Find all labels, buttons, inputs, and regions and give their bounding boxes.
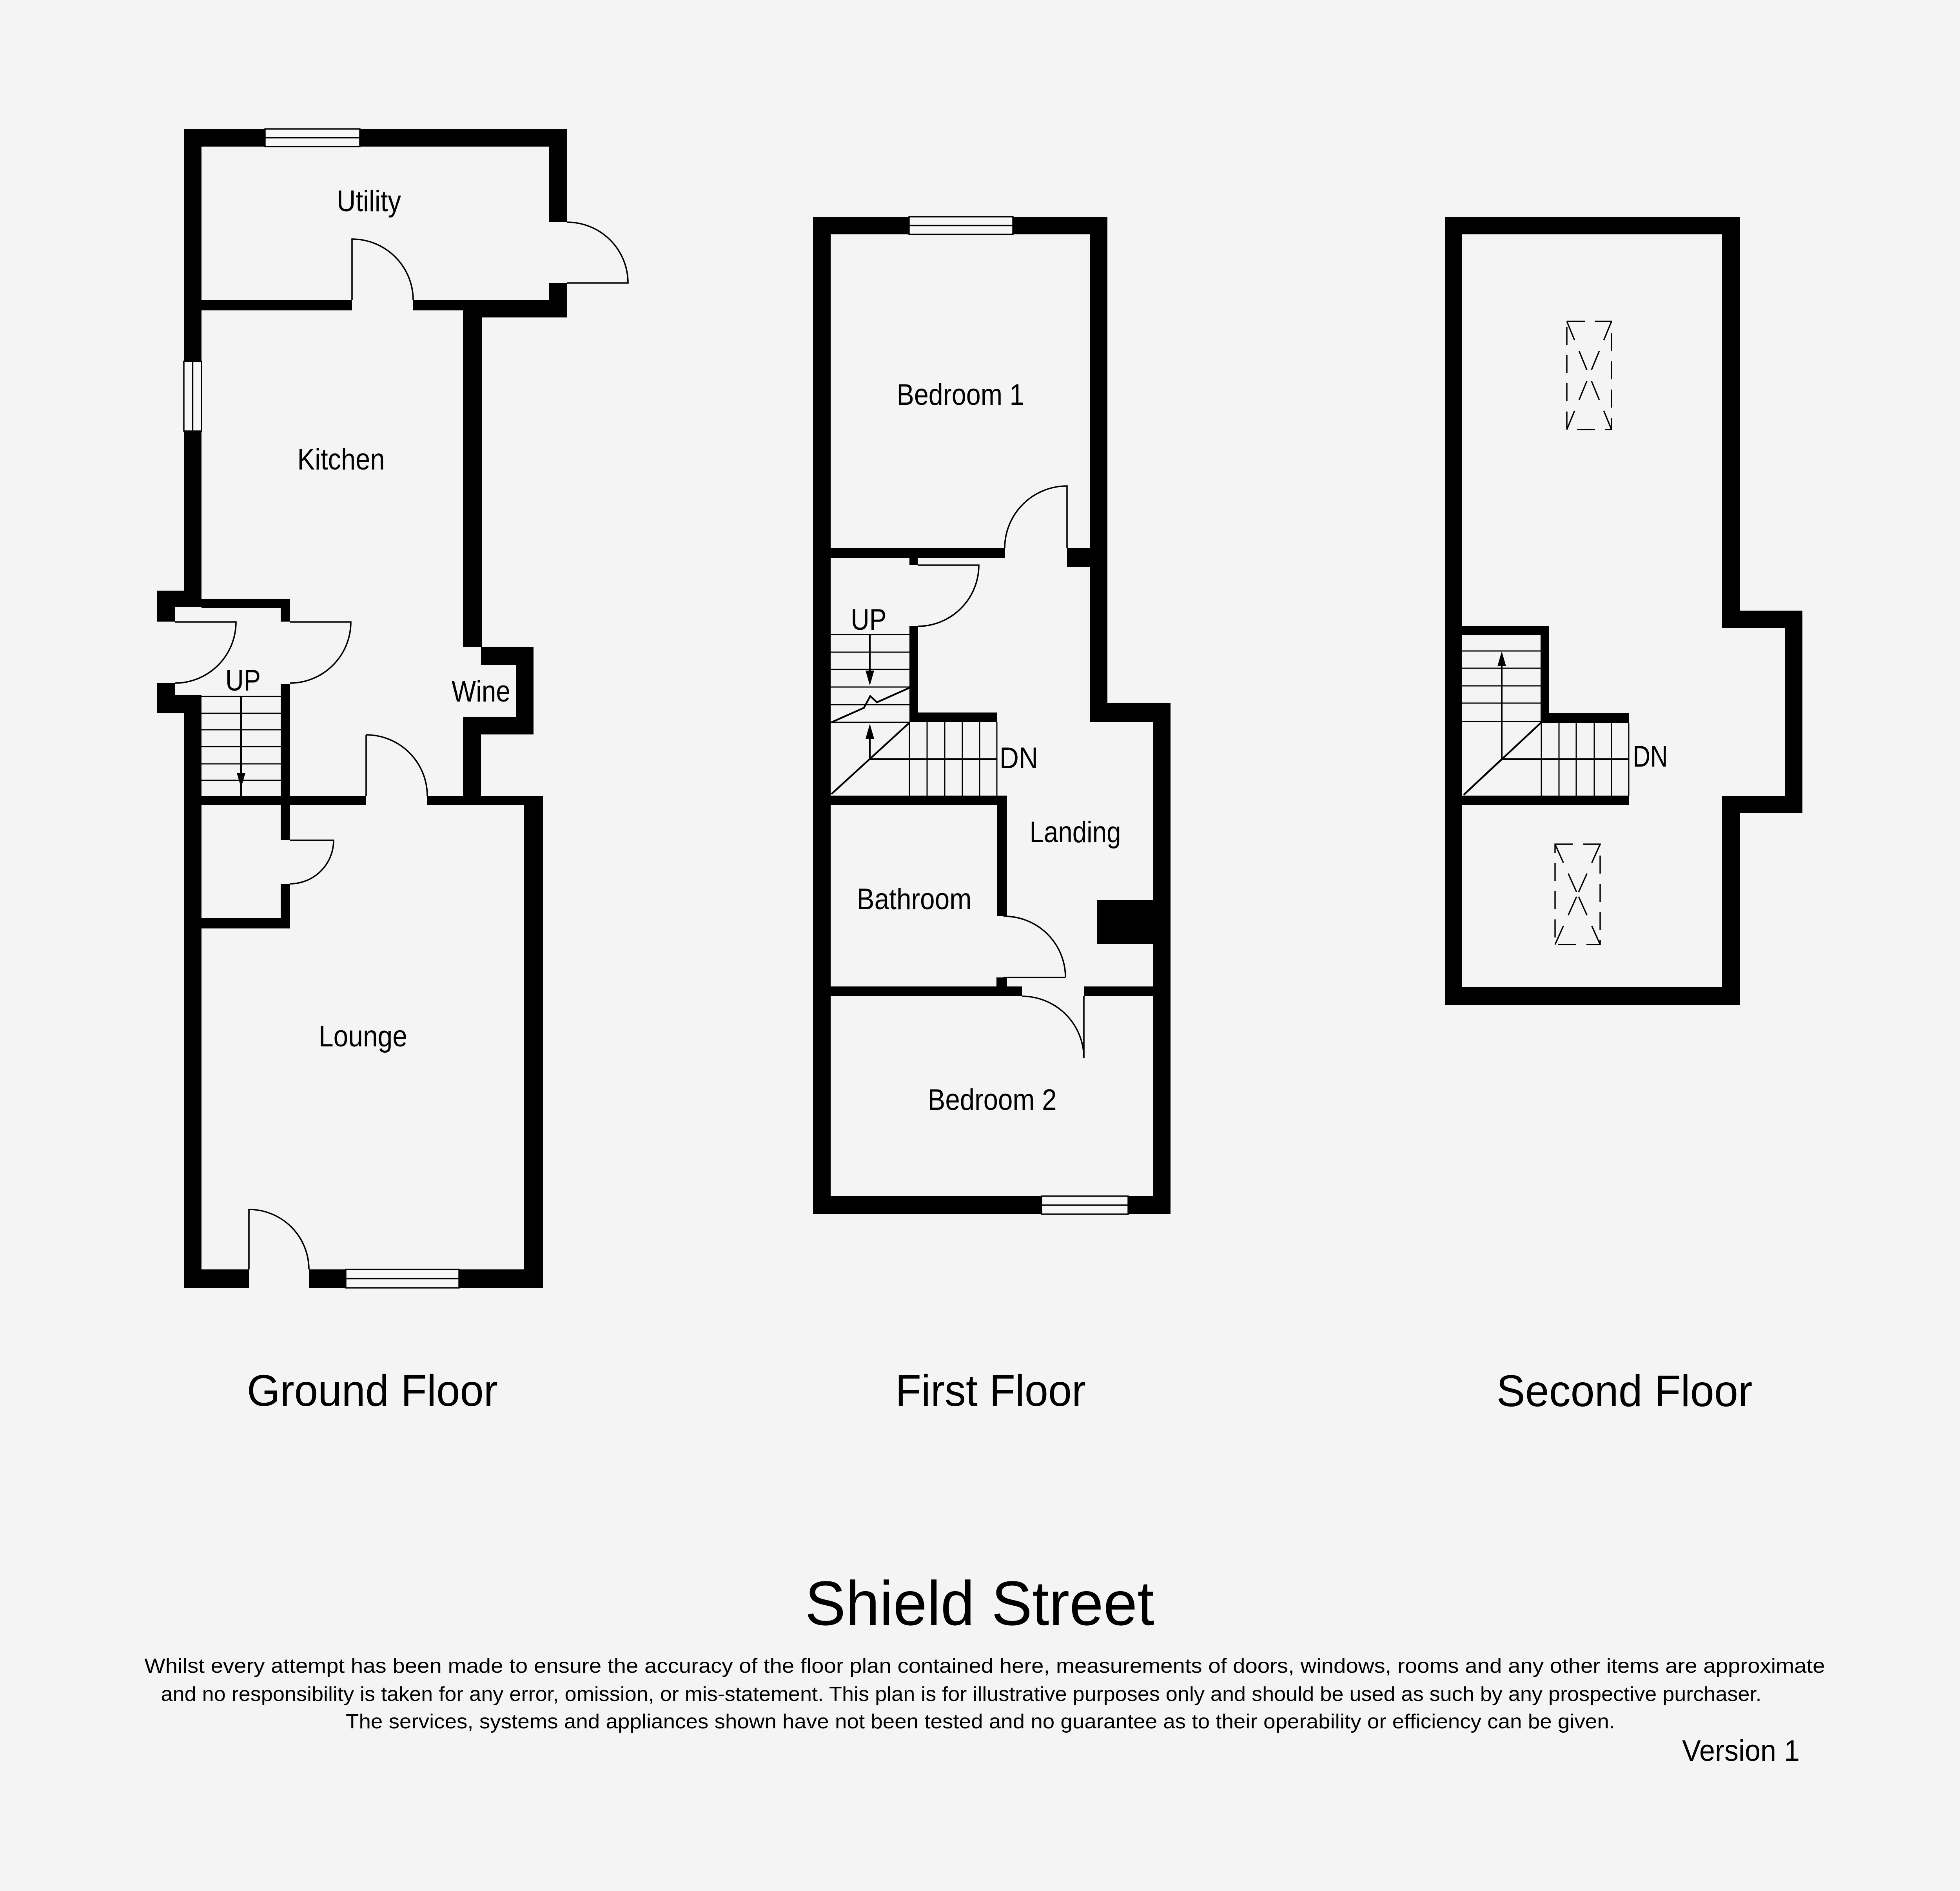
- svg-text:DN: DN: [1633, 740, 1668, 773]
- svg-text:The services, systems and appl: The services, systems and appliances sho…: [346, 1710, 1615, 1733]
- svg-text:Wine: Wine: [452, 675, 510, 708]
- svg-text:Bathroom: Bathroom: [857, 883, 972, 916]
- svg-text:and no responsibility is taken: and no responsibility is taken for any e…: [161, 1683, 1762, 1706]
- svg-text:DN: DN: [1000, 742, 1038, 775]
- svg-text:Shield Street: Shield Street: [805, 1568, 1154, 1638]
- svg-text:First Floor: First Floor: [895, 1366, 1086, 1415]
- svg-text:Landing: Landing: [1030, 816, 1121, 849]
- svg-text:Second Floor: Second Floor: [1497, 1366, 1753, 1416]
- svg-text:UP: UP: [225, 664, 261, 697]
- svg-text:Bedroom 1: Bedroom 1: [897, 378, 1024, 412]
- svg-text:Version 1: Version 1: [1682, 1734, 1800, 1768]
- svg-text:Kitchen: Kitchen: [298, 443, 385, 476]
- svg-text:UP: UP: [851, 603, 887, 636]
- svg-text:Whilst every attempt has been: Whilst every attempt has been made to en…: [145, 1655, 1825, 1677]
- svg-text:Lounge: Lounge: [319, 1020, 407, 1053]
- svg-text:Utility: Utility: [337, 185, 401, 218]
- svg-text:Ground Floor: Ground Floor: [247, 1366, 498, 1415]
- svg-text:Bedroom 2: Bedroom 2: [928, 1083, 1057, 1117]
